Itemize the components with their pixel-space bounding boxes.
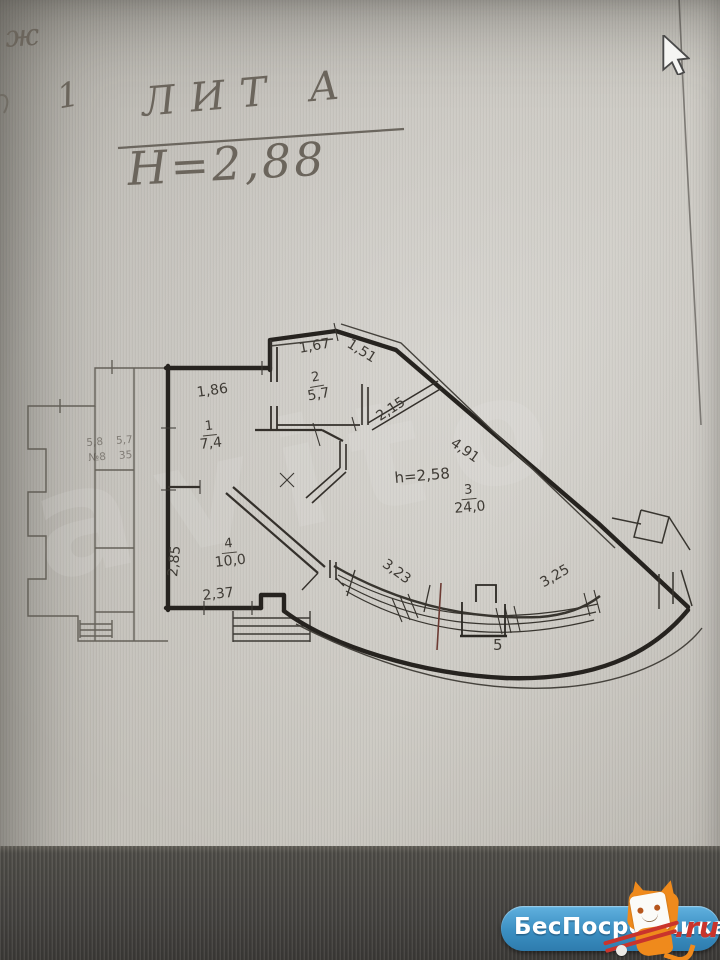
neighbor-faint-value: 35 — [119, 449, 133, 462]
mouse-cursor-icon — [662, 35, 690, 75]
besposrednika-logo: БесПосредника .ru — [501, 889, 720, 959]
room-1-label: 1 7,4 — [197, 416, 223, 452]
floor-plan-linework — [0, 0, 720, 960]
room-4-label: 4 10,0 — [212, 533, 247, 570]
dim-2-37: 2,37 — [202, 586, 234, 603]
room-1-number: 1 — [201, 419, 217, 436]
dim-1-86: 1,86 — [196, 382, 229, 400]
pen-mark — [437, 583, 441, 650]
balcony-number: 5 — [493, 638, 503, 653]
room-4-area: 10,0 — [214, 552, 247, 570]
room-4-number: 4 — [221, 537, 237, 554]
mascot-cat-icon — [618, 885, 690, 959]
dim-2-85: 2,85 — [166, 545, 183, 577]
floor-height-label: Н=2,88 — [126, 132, 328, 196]
room-3-area: 24,0 — [454, 499, 486, 516]
right-end-details — [612, 510, 692, 609]
outer-wall-thin-lines — [270, 324, 702, 688]
balcony-slab — [460, 585, 507, 636]
mascot-smile — [641, 910, 660, 924]
floor-plan-photo: avito — [0, 0, 720, 960]
stair-hatch — [233, 611, 310, 642]
neighbor-faint-value: №8 — [88, 451, 106, 464]
neighbor-apartment-walls — [28, 360, 168, 641]
corner-letter: ж — [4, 18, 40, 55]
room-3-number: 3 — [461, 483, 477, 500]
room-3-label: 3 24,0 — [452, 479, 486, 516]
neighbor-faint-value: 5,8 — [86, 436, 103, 449]
room-1-area: 7,4 — [199, 435, 223, 452]
neighbor-faint-value: 5,7 — [116, 434, 133, 447]
mascot-paw — [616, 945, 627, 956]
